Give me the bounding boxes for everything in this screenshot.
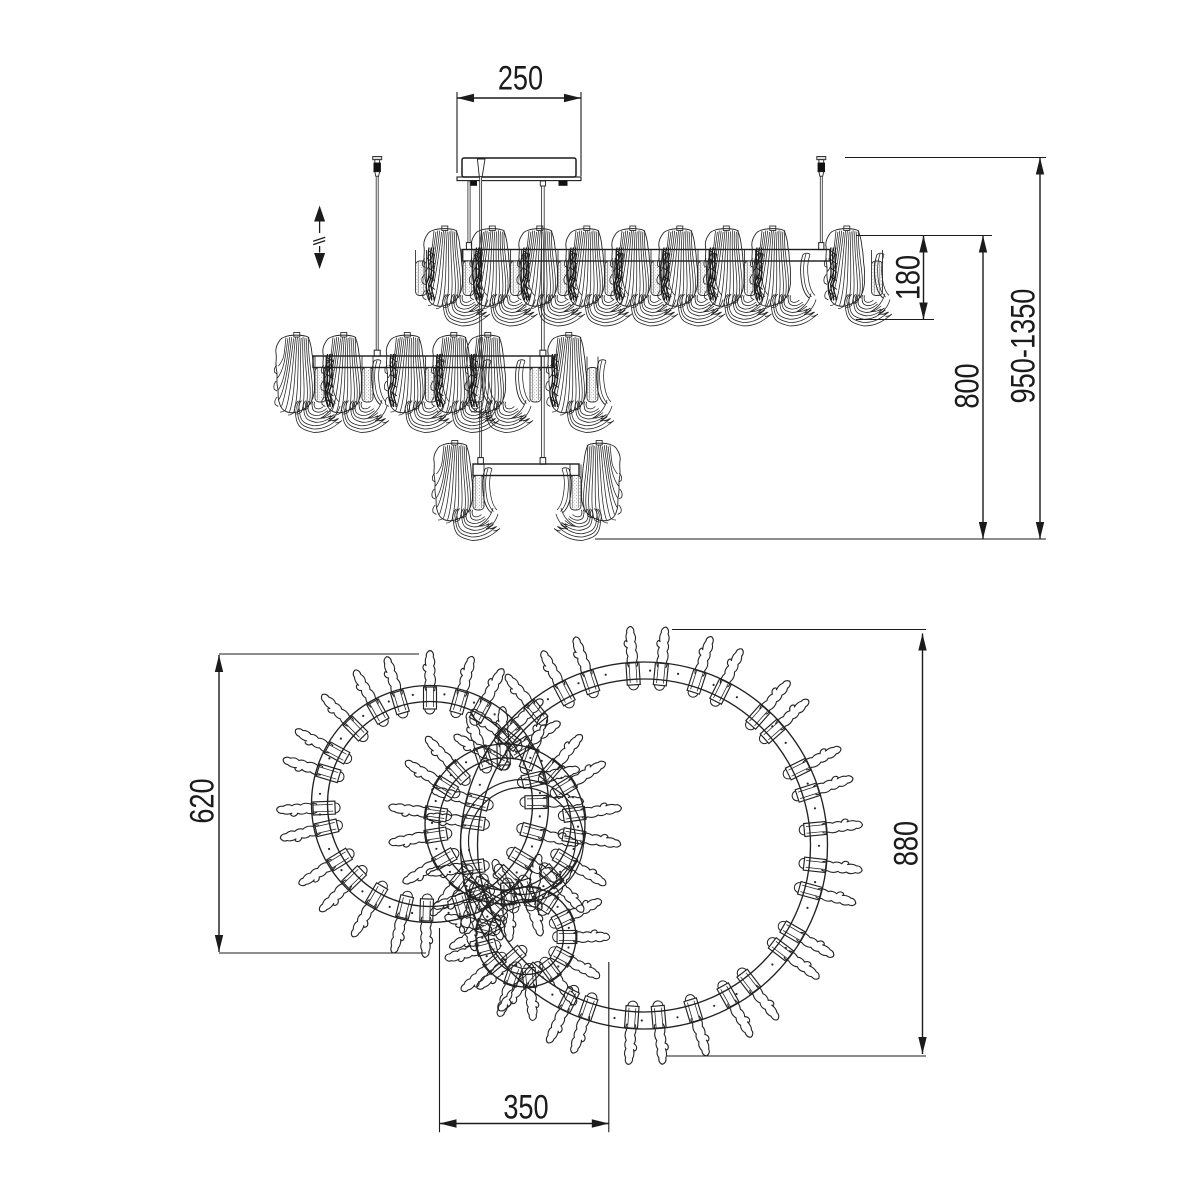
svg-text:350: 350 bbox=[503, 1088, 548, 1127]
svg-text:620: 620 bbox=[183, 778, 222, 823]
svg-text:880: 880 bbox=[887, 821, 926, 866]
svg-text:250: 250 bbox=[498, 59, 543, 98]
svg-text:800: 800 bbox=[948, 363, 987, 408]
svg-text:180: 180 bbox=[889, 255, 928, 300]
svg-text:950-1350: 950-1350 bbox=[1004, 289, 1043, 404]
